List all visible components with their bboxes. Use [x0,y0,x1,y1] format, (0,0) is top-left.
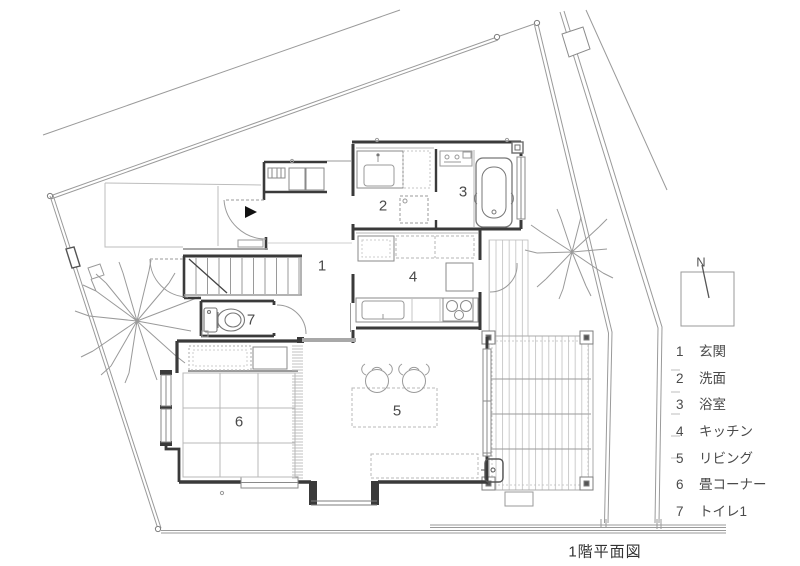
drawing-title: 1階平面図 [568,541,641,562]
entry-arrow-icon [245,206,257,218]
legend-label: キッチン [699,419,753,446]
wood-deck [482,240,593,506]
kitchen-counter [356,298,478,322]
legend-num: 2 [676,366,699,393]
legend-label: 畳コーナー [699,472,767,499]
room-label-senmen: 2 [379,198,387,215]
room-label-tatami: 6 [235,414,243,431]
legend-item: 7トイレ1 [676,499,800,526]
cooktop-icon [443,298,473,321]
legend-label: 玄関 [699,339,726,366]
interior-lines [183,148,478,371]
washing-machine [400,196,428,223]
legend-item: 2洗面 [676,366,800,393]
legend: 1玄関 2洗面 3浴室 4キッチン 5リビング 6畳コーナー 7トイレ1 [676,339,800,526]
legend-item: 3浴室 [676,392,800,419]
shower-counter [440,151,472,166]
legend-label: 洗面 [699,366,726,393]
bathtub-icon [475,158,514,227]
legend-item: 4キッチン [676,419,800,446]
shoe-closet [268,168,324,190]
legend-item: 6畳コーナー [676,472,800,499]
floor-plan-page: 1 2 3 4 5 6 7 N 1玄関 2洗面 3浴室 4キッチン 5リビング … [0,0,800,566]
sofa-outline [371,454,478,478]
room-label-yokushitsu: 3 [459,184,467,201]
legend-item: 5リビング [676,446,800,473]
legend-label: リビング [699,446,753,473]
vanity-sink [357,151,430,188]
legend-num: 1 [676,339,699,366]
tatami-closet [189,346,287,370]
toilet-icon [202,308,245,337]
room-label-kitchen: 4 [409,269,417,286]
north-road-lines [43,10,540,199]
tree-icon-2 [525,209,613,299]
north-label: N [696,255,705,270]
south-road-lines [161,519,726,533]
legend-num: 7 [676,499,699,526]
entrance-door [224,200,266,239]
legend-num: 5 [676,446,699,473]
legend-label: トイレ1 [699,499,747,526]
room-label-genkan: 1 [318,258,326,275]
legend-item: 1玄関 [676,339,800,366]
stairs [184,257,302,295]
toilet-door-arc [277,305,306,334]
north-arrow-icon [681,265,734,326]
gate-door [150,259,188,297]
room-label-living: 5 [393,403,401,420]
sliding-partition [292,345,303,480]
legend-num: 3 [676,392,699,419]
legend-num: 6 [676,472,699,499]
room-label-toilet: 7 [247,312,255,329]
legend-label: 浴室 [699,392,726,419]
step-stone [505,492,533,506]
legend-num: 4 [676,419,699,446]
